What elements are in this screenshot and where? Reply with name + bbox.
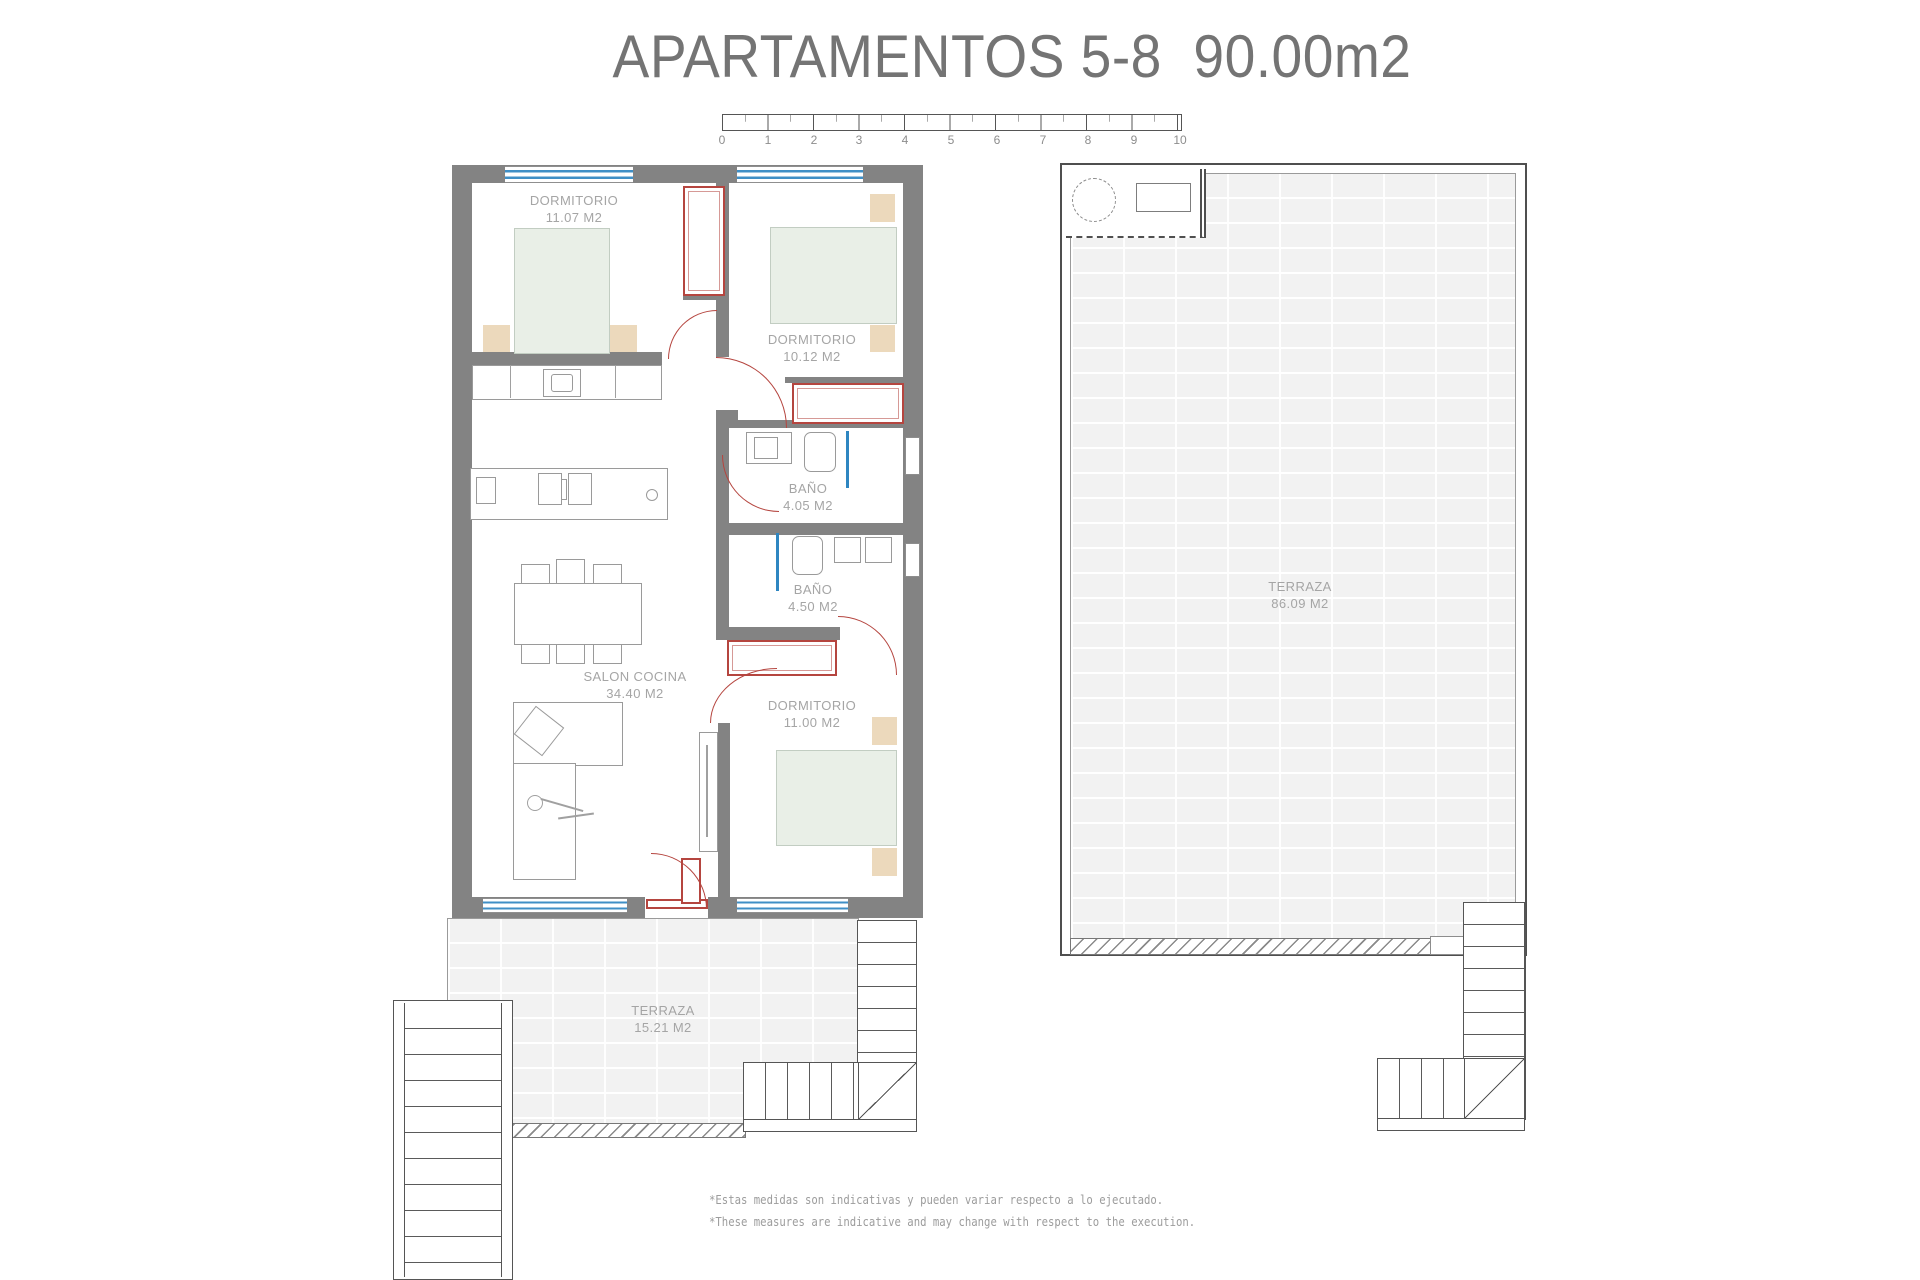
nightstand <box>872 848 897 876</box>
cooktop-burner <box>538 473 562 505</box>
scale-tick: 4 <box>902 133 909 147</box>
page-title: APARTAMENTOS 5-8 90.00m2 <box>613 22 1412 91</box>
wardrobe <box>683 186 725 296</box>
bathroom-sink <box>865 537 892 563</box>
counter-divider <box>615 365 616 398</box>
nightstand <box>872 717 897 745</box>
scale-tick: 8 <box>1085 133 1092 147</box>
faucet <box>646 489 658 501</box>
wall-niche <box>905 543 920 577</box>
tv-unit <box>699 732 718 852</box>
wall-segment <box>716 627 840 640</box>
room-label-bathroom1: BAÑO 4.05 M2 <box>783 480 833 514</box>
tv-screen <box>706 745 708 837</box>
room-label-terrace-solarium: TERRAZA 86.09 M2 <box>1268 578 1331 612</box>
room-name: DORMITORIO <box>768 332 856 347</box>
room-area: 4.50 M2 <box>788 599 838 614</box>
bathroom-sink <box>754 437 778 459</box>
room-name: TERRAZA <box>1268 579 1331 594</box>
nightstand <box>870 325 895 352</box>
nightstand <box>870 194 895 222</box>
bed <box>770 227 897 324</box>
wardrobe <box>727 640 837 676</box>
room-label-bedroom2: DORMITORIO 10.12 M2 <box>768 331 856 365</box>
scale-tick: 6 <box>994 133 1001 147</box>
room-area: 11.00 M2 <box>784 715 840 730</box>
nightstand <box>610 325 637 352</box>
chair <box>556 644 585 664</box>
room-name: BAÑO <box>794 582 832 597</box>
toilet <box>804 432 836 472</box>
cooktop-burner <box>568 473 592 505</box>
scale-tick: 7 <box>1040 133 1047 147</box>
cooktop-control <box>561 479 567 500</box>
room-label-terrace-ground: TERRAZA 15.21 M2 <box>631 1002 694 1036</box>
chair <box>593 644 622 664</box>
wall-niche <box>905 437 920 475</box>
solarium-stair-corner <box>1463 1058 1526 1120</box>
wall-segment <box>716 535 729 627</box>
room-area: 15.21 M2 <box>634 1020 691 1035</box>
scale-tick: 1 <box>765 133 772 147</box>
terrace-stair-base <box>743 1119 917 1132</box>
shower-screen <box>846 431 849 488</box>
room-area: 34.40 M2 <box>606 686 663 701</box>
bathroom-sink <box>834 537 861 563</box>
nightstand <box>483 325 510 352</box>
stair-landing <box>1430 936 1465 955</box>
island-module <box>476 477 496 504</box>
room-area: 10.12 M2 <box>783 349 840 364</box>
room-area: 11.07 M2 <box>546 210 602 225</box>
chair <box>521 564 550 584</box>
counter-divider <box>510 365 511 398</box>
dining-table <box>514 583 642 645</box>
scale-tick: 0 <box>719 133 726 147</box>
window <box>483 898 627 913</box>
window <box>505 166 633 183</box>
scale-tick: 5 <box>948 133 955 147</box>
terrace-solarium-floor <box>1070 173 1516 942</box>
wall-segment <box>716 428 729 535</box>
footnote-english: *These measures are indicative and may c… <box>709 1214 1195 1229</box>
room-name: DORMITORIO <box>530 193 618 208</box>
terrace-stair-horizontal-run <box>743 1062 859 1121</box>
scale-bar <box>722 114 1182 131</box>
room-name: BAÑO <box>789 481 827 496</box>
door-swing-arc <box>716 357 787 428</box>
room-area: 4.05 M2 <box>783 498 833 513</box>
window <box>737 166 863 183</box>
solarium-stair-horizontal-run <box>1377 1058 1465 1120</box>
room-label-living: SALON COCINA 34.40 M2 <box>583 668 686 702</box>
scale-tick: 9 <box>1131 133 1138 147</box>
sofa-body <box>513 763 576 880</box>
footnote-spanish: *Estas medidas son indicativas y pueden … <box>709 1192 1163 1207</box>
scale-tick: 2 <box>811 133 818 147</box>
wall-segment <box>718 723 730 897</box>
sink-basin <box>551 374 573 392</box>
chair <box>556 559 585 584</box>
terrace-edge-hatch <box>1070 938 1432 955</box>
floor-plan-sheet: APARTAMENTOS 5-8 90.00m2 0 1 2 3 4 5 6 7… <box>0 0 1920 1280</box>
scale-tick: 10 <box>1173 133 1186 147</box>
storage-unit <box>1136 183 1191 212</box>
room-name: TERRAZA <box>631 1003 694 1018</box>
chair <box>521 644 550 664</box>
toilet <box>792 536 823 575</box>
stair-treads <box>404 1003 502 1277</box>
bed <box>776 750 897 846</box>
room-area: 86.09 M2 <box>1271 596 1328 611</box>
wall-segment <box>452 183 472 918</box>
exterior-staircase <box>393 1000 513 1280</box>
door-swing-arc <box>838 616 897 675</box>
wardrobe <box>792 383 904 424</box>
bed <box>514 228 610 354</box>
scale-tick: 3 <box>856 133 863 147</box>
room-label-bedroom3: DORMITORIO 11.00 M2 <box>768 697 856 731</box>
door-swing-arc <box>668 310 717 359</box>
wall-segment <box>716 523 903 535</box>
room-label-bathroom2: BAÑO 4.50 M2 <box>788 581 838 615</box>
jacuzzi-circle <box>1072 178 1116 222</box>
room-name: DORMITORIO <box>768 698 856 713</box>
room-label-bedroom1: DORMITORIO 11.07 M2 <box>530 192 618 226</box>
solarium-stair-base <box>1377 1118 1525 1131</box>
chair <box>593 564 622 584</box>
room-name: SALON COCINA <box>583 669 686 684</box>
shower-screen <box>776 533 779 591</box>
terrace-stair-corner <box>857 1062 917 1121</box>
terrace-stair-vertical-run <box>857 920 917 1064</box>
solarium-stair-vertical-run <box>1463 902 1526 1060</box>
window <box>737 898 848 913</box>
